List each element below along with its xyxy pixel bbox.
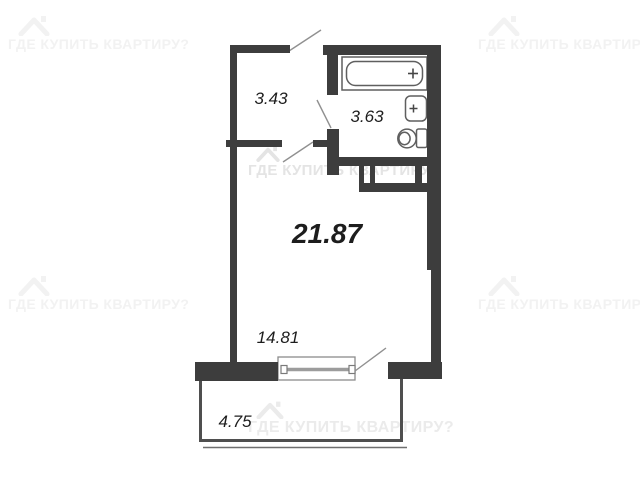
wall-bath-bottom (327, 157, 427, 166)
area-label-hallway: 3.43 (254, 89, 287, 109)
floor-plan-image: ГДЕ КУПИТЬ КВАРТИРУ? ГДЕ КУПИТЬ КВАРТИРУ… (0, 0, 640, 480)
wall-bath-door-post (327, 129, 339, 175)
wall-left (230, 45, 237, 363)
area-label-balcony: 4.75 (218, 412, 251, 432)
wall-bottom-left (195, 362, 278, 381)
area-label-bathroom: 3.63 (350, 107, 383, 127)
wall-bottom-right (388, 362, 442, 379)
area-label-living: 14.81 (257, 328, 300, 348)
vent-shaft-rib-1 (359, 166, 364, 183)
wall-bath-left-upper (327, 55, 338, 95)
bathtub-icon (342, 57, 427, 90)
vent-shaft-rib-3 (415, 166, 422, 183)
window-icon (278, 357, 355, 380)
balcony-door-swing (355, 348, 386, 371)
wall-right-lower (431, 270, 441, 362)
wall-right-upper (427, 45, 441, 270)
vent-shaft-bottom (359, 183, 440, 192)
wall-stub-room-door (313, 140, 327, 147)
wall-top-hallway (230, 45, 290, 53)
wall-top-bathroom (323, 45, 441, 55)
entrance-door-swing (289, 30, 321, 51)
room-door-swing (283, 142, 313, 162)
vent-shaft-rib-2 (370, 166, 375, 183)
area-label-total: 21.87 (292, 218, 362, 250)
sink-icon (406, 96, 427, 121)
bathroom-door-swing (317, 100, 331, 128)
wall-hallway-bottom (237, 140, 282, 147)
wall-left-tick (226, 140, 230, 147)
toilet-icon (398, 129, 427, 148)
